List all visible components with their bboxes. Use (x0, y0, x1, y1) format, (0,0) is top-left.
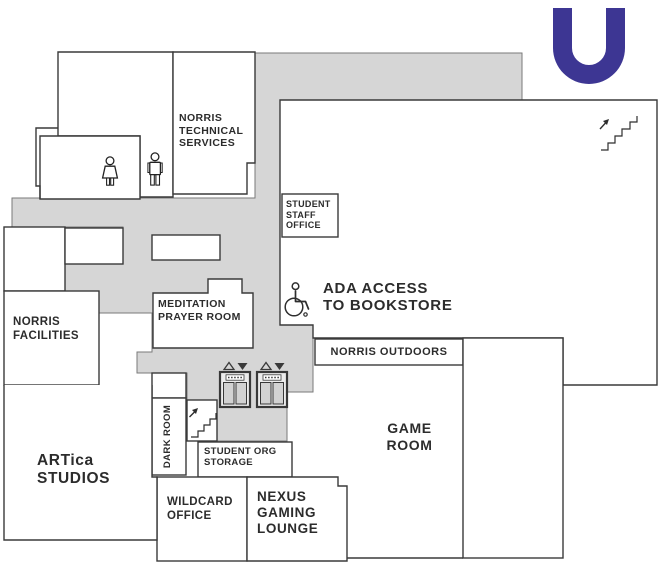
label-ada-access-to-bookstore: ADA ACCESS TO BOOKSTORE (323, 281, 453, 314)
floor-plan-map: NORRIS TECHNICAL SERVICES STUDENT STAFF … (0, 0, 665, 575)
label-dark-room-text: DARK ROOM (164, 405, 175, 468)
label-meditation-prayer-room: MEDITATION PRAYER ROOM (158, 298, 241, 323)
label-wildcard-office: WILDCARD OFFICE (167, 496, 233, 523)
label-norris-outdoors: NORRIS OUTDOORS (315, 339, 463, 365)
room-stairwell (187, 400, 217, 441)
room-womens-restroom (40, 136, 140, 199)
label-student-org-storage: STUDENT ORG STORAGE (204, 446, 276, 468)
room-unlabeled-1 (4, 227, 65, 291)
room-unlabeled-2 (65, 228, 123, 264)
label-student-staff-office: STUDENT STAFF OFFICE (286, 199, 331, 231)
label-norris-facilities: NORRIS FACILITIES (13, 316, 79, 343)
room-unlabeled-right (463, 338, 563, 558)
label-dark-room: DARK ROOM (152, 398, 186, 475)
room-unlabeled-3 (152, 235, 220, 260)
label-nexus-gaming-lounge: NEXUS GAMING LOUNGE (257, 489, 318, 537)
label-game-room: GAME ROOM (361, 420, 458, 454)
label-norris-technical-services: NORRIS TECHNICAL SERVICES (179, 112, 243, 150)
room-closet-above-darkroom (152, 373, 186, 398)
label-artica-studios: ARTica STUDIOS (37, 452, 110, 487)
university-u-logo (553, 8, 625, 84)
